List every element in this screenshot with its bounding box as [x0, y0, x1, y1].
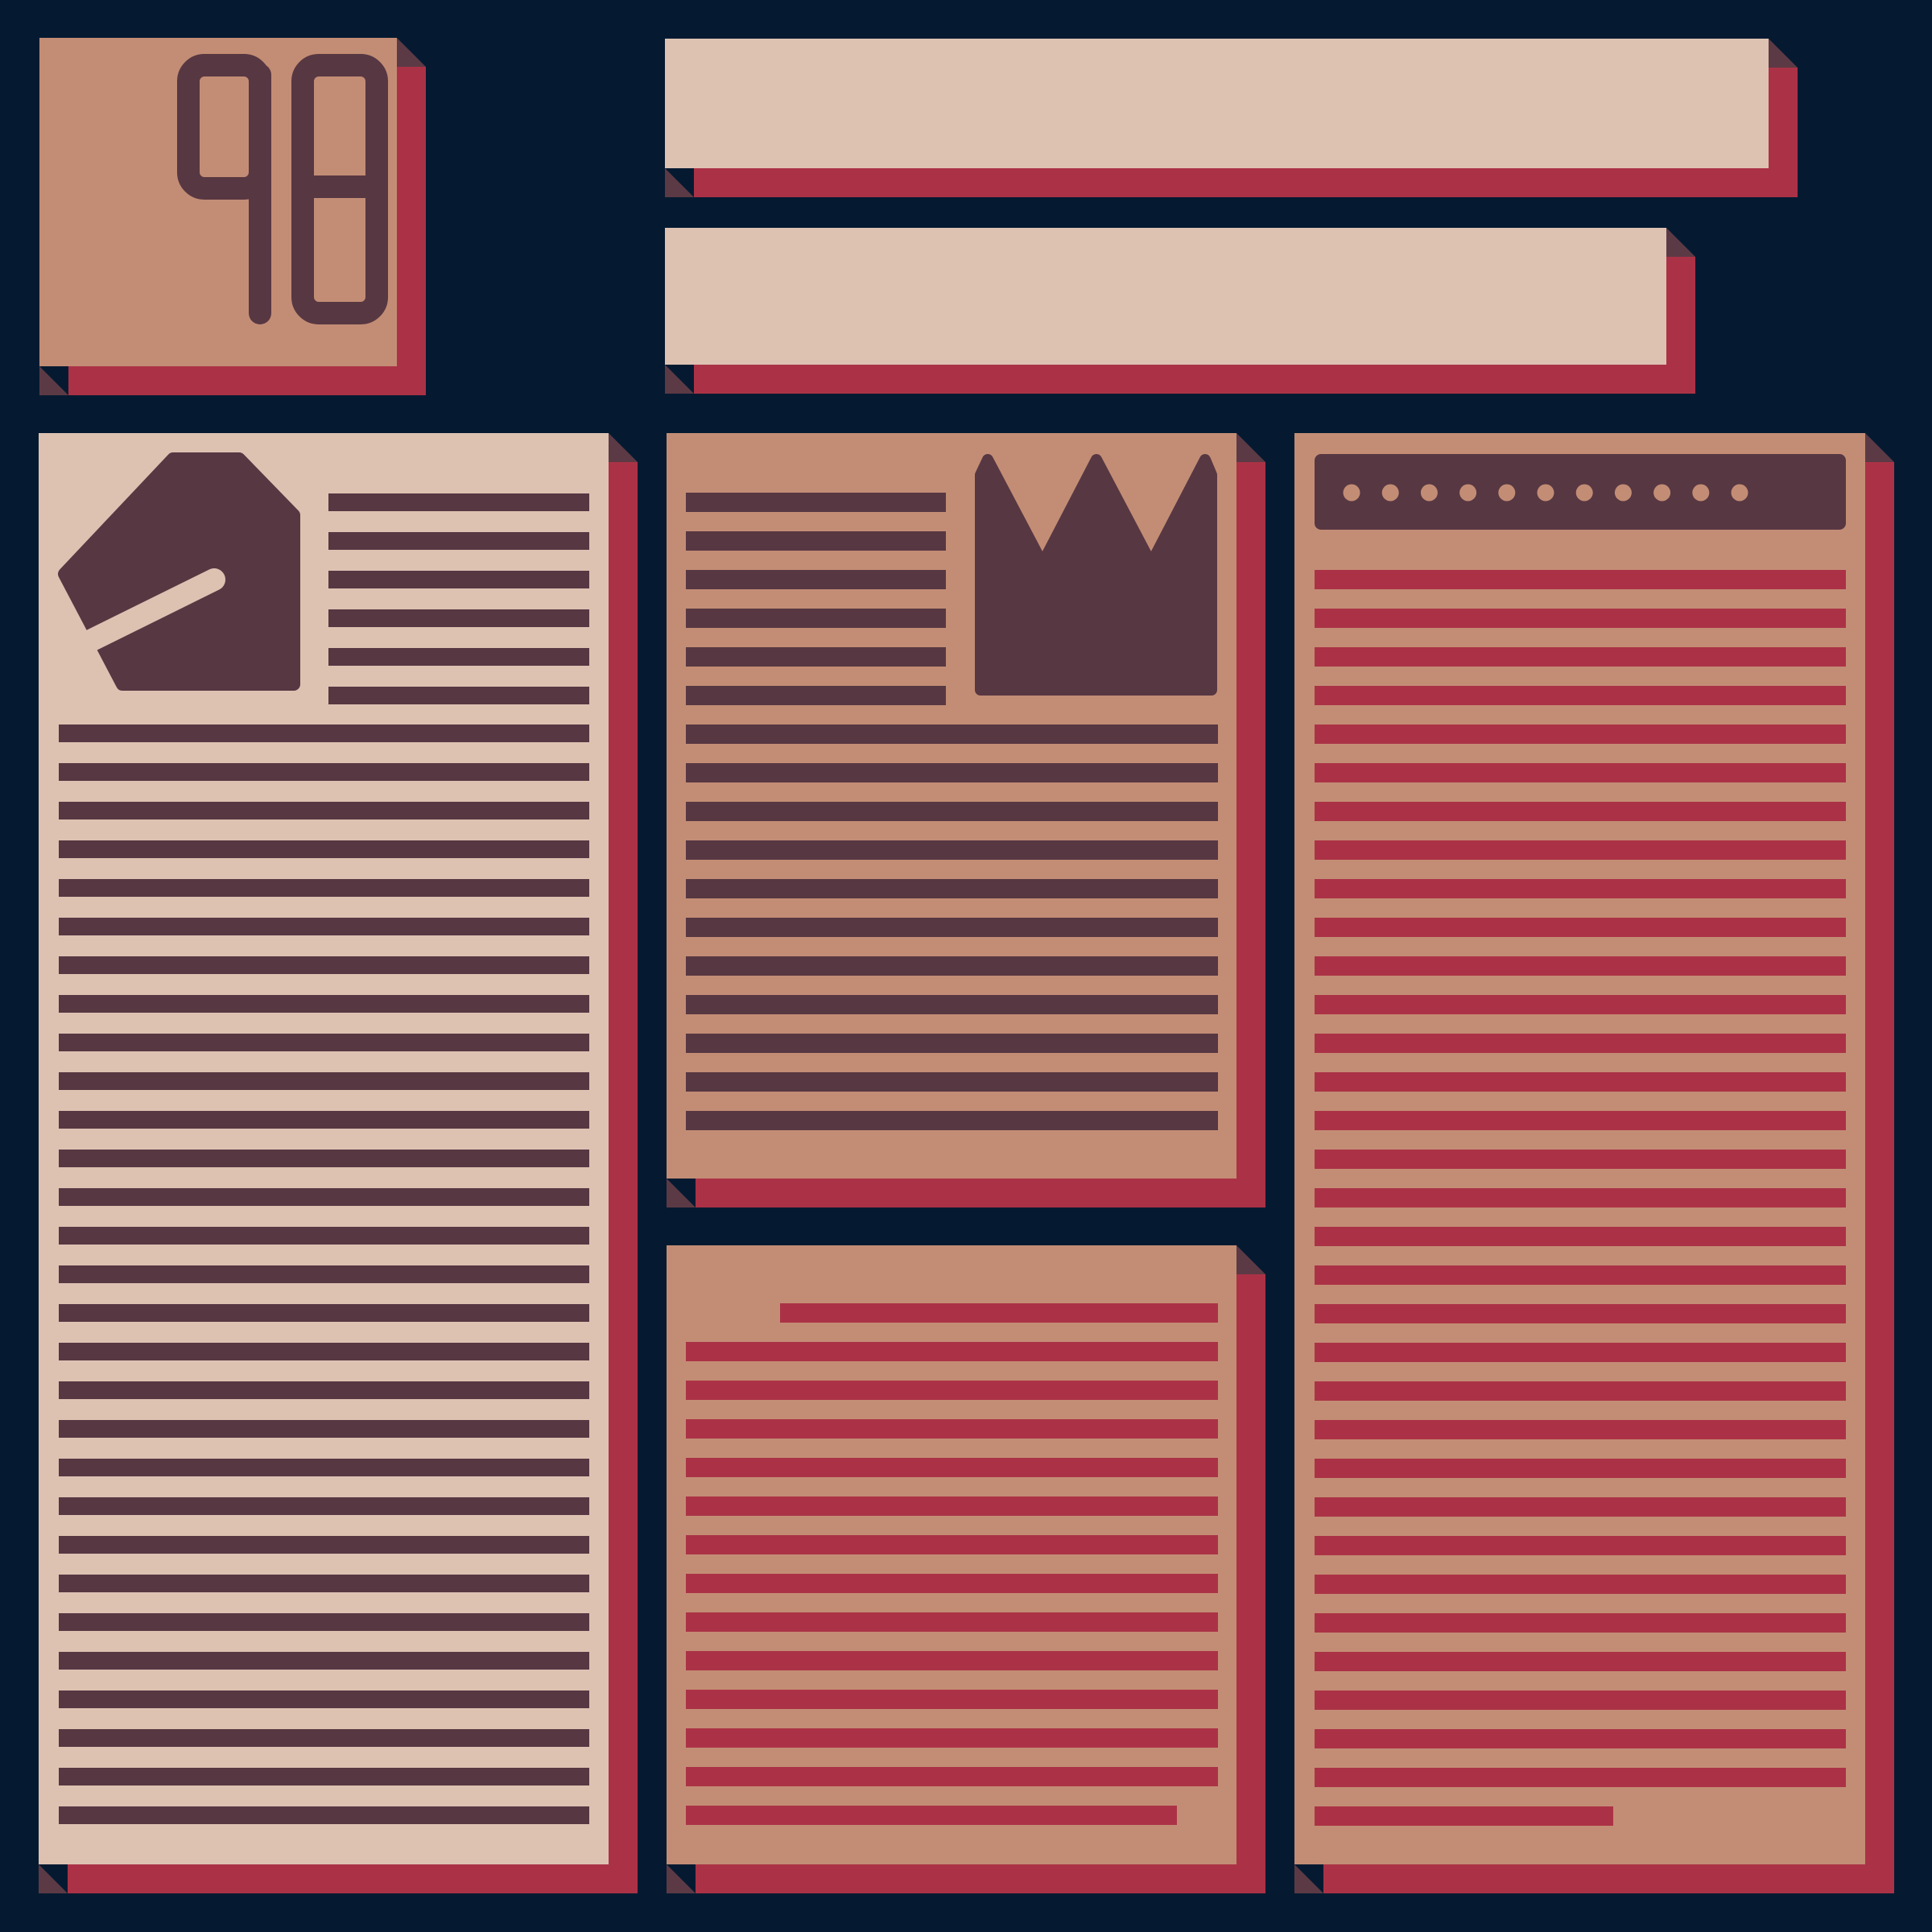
article-right-column [1294, 433, 1865, 1864]
newspaper-collage-poster: 98 [0, 0, 1932, 1932]
body-line [59, 1806, 589, 1824]
corner-fold-shade [665, 168, 694, 197]
body-line [59, 763, 589, 781]
header-dot [1653, 485, 1670, 502]
body-line [686, 1458, 1218, 1477]
body-line [59, 995, 589, 1013]
corner-fold-shade [39, 366, 68, 395]
header-dot [1382, 485, 1399, 502]
header-dot [1538, 485, 1554, 502]
body-line [1315, 686, 1846, 705]
body-line [686, 1690, 1218, 1709]
corner-fold-shade [1865, 433, 1894, 462]
paper-face [667, 1245, 1236, 1864]
corner-fold-shade [1236, 1245, 1265, 1274]
body-line [59, 840, 589, 858]
headline-line [328, 571, 589, 588]
corner-fold-shade [1294, 1864, 1323, 1893]
body-line [1315, 570, 1846, 589]
body-line [1315, 1227, 1846, 1246]
body-line [1315, 609, 1846, 628]
body-line [1315, 1459, 1846, 1478]
paper-face [667, 433, 1236, 1179]
paper-face [1294, 433, 1865, 1864]
header-dot [1421, 485, 1438, 502]
corner-fold-shade [665, 365, 694, 394]
body-line [686, 1651, 1218, 1670]
body-line [59, 1304, 589, 1322]
body-line [686, 1419, 1218, 1439]
header-dot [1576, 485, 1593, 502]
header-dot [1344, 485, 1360, 502]
headline-line [328, 532, 589, 550]
body-line [1315, 1150, 1846, 1169]
corner-fold-shade [1236, 433, 1265, 462]
body-line [59, 918, 589, 935]
body-line [1315, 1034, 1846, 1053]
body-line [1315, 1806, 1613, 1826]
body-line [1315, 802, 1846, 821]
body-line [1315, 1111, 1846, 1130]
body-line [1315, 1188, 1846, 1207]
body-line [686, 1728, 1218, 1748]
header-dot [1692, 485, 1709, 502]
body-line [59, 1497, 589, 1515]
article-left-column [39, 433, 609, 1864]
body-line [59, 1536, 589, 1554]
body-line [1315, 724, 1846, 744]
body-line [686, 1806, 1177, 1825]
body-line [59, 1265, 589, 1283]
body-line [686, 1496, 1218, 1516]
body-line [686, 1535, 1218, 1554]
paper-face [665, 228, 1666, 365]
headline-line [328, 648, 589, 666]
masthead-bar-1 [665, 39, 1769, 168]
paper-face [39, 433, 609, 1864]
issue-number-digits [39, 38, 397, 366]
corner-fold-shade [667, 1179, 696, 1207]
headline-line [328, 687, 589, 704]
body-line [1315, 1613, 1846, 1633]
body-line [1315, 1497, 1846, 1517]
body-line [1315, 1575, 1846, 1594]
body-line [1315, 1072, 1846, 1092]
body-line [59, 1150, 589, 1167]
body-line [780, 1303, 1218, 1323]
issue-number-text: 98 [0, 0, 1, 1]
body-line [1315, 840, 1846, 860]
body-line [59, 1111, 589, 1129]
article-middle-brief [667, 1245, 1236, 1864]
body-line [59, 1227, 589, 1245]
body-line [59, 1768, 589, 1785]
headline-line [328, 493, 589, 511]
body-line [1315, 1536, 1846, 1555]
body-line [686, 1612, 1218, 1632]
body-line [1315, 1768, 1846, 1787]
body-line [59, 1613, 589, 1631]
article-middle-feature [667, 433, 1236, 1179]
corner-fold-shade [667, 1864, 696, 1893]
body-line [1315, 1343, 1846, 1362]
body-line [1315, 763, 1846, 782]
header-dot [1732, 485, 1748, 502]
body-line [59, 802, 589, 819]
body-line [1315, 1381, 1846, 1401]
body-line [59, 1034, 589, 1051]
body-line [1315, 647, 1846, 667]
body-line [59, 879, 589, 897]
body-line [59, 956, 589, 974]
paper-face [665, 39, 1769, 168]
body-line [59, 1381, 589, 1399]
knight-icon [39, 433, 328, 699]
crown-icon [667, 433, 1236, 1179]
corner-fold-shade [609, 433, 638, 462]
body-line [1315, 1304, 1846, 1323]
body-line [59, 1188, 589, 1206]
body-line [59, 1652, 589, 1670]
body-line [59, 1459, 589, 1476]
body-line [1315, 879, 1846, 898]
header-dot [1615, 485, 1632, 502]
corner-fold-shade [39, 1864, 68, 1893]
body-line [1315, 1690, 1846, 1710]
body-line [1315, 1729, 1846, 1748]
body-line [1315, 918, 1846, 937]
issue-number-card [39, 38, 397, 366]
body-line [1315, 1265, 1846, 1285]
body-line [1315, 956, 1846, 976]
masthead-bar-2 [665, 228, 1666, 365]
header-dot [1459, 485, 1476, 502]
header-dots-row [1315, 454, 1846, 530]
body-line [686, 1767, 1218, 1786]
body-line [686, 1574, 1218, 1593]
body-line [686, 1381, 1218, 1400]
body-line [59, 724, 589, 742]
body-line [59, 1575, 589, 1592]
body-line [1315, 1652, 1846, 1671]
body-line [59, 1072, 589, 1090]
body-line [1315, 1420, 1846, 1439]
corner-fold-shade [1769, 39, 1798, 68]
body-line [59, 1343, 589, 1360]
body-line [1315, 995, 1846, 1014]
corner-fold-shade [1666, 228, 1695, 257]
dotted-header-bar [1315, 454, 1846, 530]
body-line [59, 1690, 589, 1708]
paper-face [39, 38, 397, 366]
header-dot [1498, 485, 1515, 502]
body-line [686, 1342, 1218, 1361]
body-line [59, 1420, 589, 1438]
corner-fold-shade [397, 38, 426, 67]
body-line [59, 1729, 589, 1747]
headline-line [328, 609, 589, 627]
